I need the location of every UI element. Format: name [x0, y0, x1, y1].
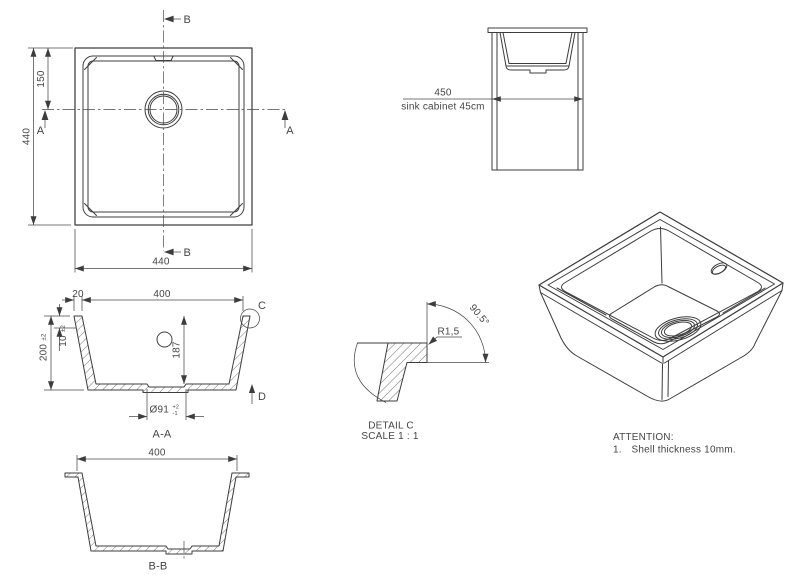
section-label-a-right: A [286, 125, 294, 137]
section-bb-title: B-B [149, 561, 168, 573]
overflow-hole-3d [709, 261, 728, 277]
dim-drain-offset-text: 150 [36, 70, 47, 88]
dim-arrow [574, 96, 583, 102]
section-arrow-b-bottom [164, 249, 174, 256]
countertop [488, 28, 587, 33]
detail-c-title: DETAIL C [368, 421, 414, 432]
svg-text:90.5°: 90.5° [467, 302, 491, 328]
svg-text:±2: ±2 [61, 325, 67, 332]
dim-cabinet-width-text: 450 [434, 88, 452, 99]
cabinet-caption: sink cabinet 45cm [401, 102, 484, 113]
dim-arrow [492, 96, 501, 102]
overflow-ring [711, 263, 727, 276]
shell-cross-section [74, 316, 250, 393]
dim-inner-width-text: 400 [148, 448, 166, 459]
dim-radius-text: R1,5 [438, 327, 460, 338]
bowl-corner-edge [557, 288, 606, 315]
wall-detail-section [377, 343, 427, 401]
dim-drain-dia-text: Ø91 [150, 405, 170, 416]
shell-cross-section [65, 473, 249, 554]
bowl-corner-edge [661, 227, 663, 283]
section-label-b-bottom: B [184, 247, 192, 259]
attention-note: ATTENTION: 1. Shell thickness 10mm. [613, 432, 736, 456]
body-front-corner-edge [662, 364, 663, 400]
rim-underside-edge [541, 293, 662, 364]
detail-c-scale: SCALE 1 : 1 [361, 431, 418, 442]
dim-inner-width-text: 400 [153, 289, 171, 300]
detail-c-view: 90.5° R1,5 DETAIL C SCALE 1 : 1 [354, 302, 491, 442]
corner-chamfer [231, 58, 243, 70]
corner-chamfer [85, 204, 97, 216]
dim-depth-text-group: 187 [172, 341, 183, 359]
cabinet-view: 450 sink cabinet 45cm [401, 28, 587, 170]
technical-drawing-page: B B A A 440 150 440 [0, 0, 800, 579]
sink-drawing-canvas: B B A A 440 150 440 [0, 0, 800, 579]
direction-d-arrow [249, 384, 255, 393]
overflow-hole-section [157, 332, 172, 347]
dim-height-text-group: 200 ±2 [39, 333, 50, 361]
section-aa-title: A-A [153, 429, 172, 441]
section-bb-view: 400 B-B [65, 448, 249, 573]
svg-text:187: 187 [172, 341, 183, 359]
dim-rim-text: 20 [72, 289, 84, 300]
svg-text:10: 10 [58, 335, 69, 347]
section-label-a-left: A [37, 125, 45, 137]
svg-text:200: 200 [39, 344, 50, 362]
radius-leader [429, 337, 463, 345]
section-arrow-a-left [42, 110, 49, 120]
dim-angle-text-group: 90.5° [467, 302, 491, 328]
sink-profile-inner [503, 33, 572, 64]
dim-width-text: 440 [152, 257, 170, 268]
svg-text:150: 150 [36, 70, 47, 88]
attention-heading: ATTENTION: [613, 432, 674, 443]
dim-drain-tol-lower: -1 [173, 411, 178, 417]
svg-text:±2: ±2 [42, 333, 48, 340]
dim-drain-tol-upper: +2 [173, 405, 180, 411]
top-view: B B A A 440 150 440 [22, 10, 295, 273]
isometric-view [539, 212, 783, 401]
corner-chamfer [85, 58, 97, 70]
svg-text:440: 440 [22, 128, 33, 146]
section-arrow-a-right [282, 110, 289, 120]
sink-bottom-lip [506, 66, 569, 73]
corner-chamfer [231, 204, 243, 216]
section-label-b-top: B [184, 14, 192, 26]
attention-note-text: Shell thickness 10mm. [632, 445, 736, 456]
section-arrow-b-top [164, 16, 174, 23]
attention-note-number: 1. [613, 445, 622, 456]
bowl-corner-edge [723, 288, 765, 313]
detail-c-callout-label: C [258, 300, 266, 312]
rim-underside-edge [665, 291, 783, 364]
section-aa-view: C D 20 400 200 ±2 10 ±2 187 [39, 289, 267, 441]
direction-d-label: D [258, 391, 266, 403]
sink-profile-outer [500, 33, 575, 67]
dim-height-text: 440 [22, 128, 33, 146]
body-front-corner-edge [668, 361, 669, 397]
